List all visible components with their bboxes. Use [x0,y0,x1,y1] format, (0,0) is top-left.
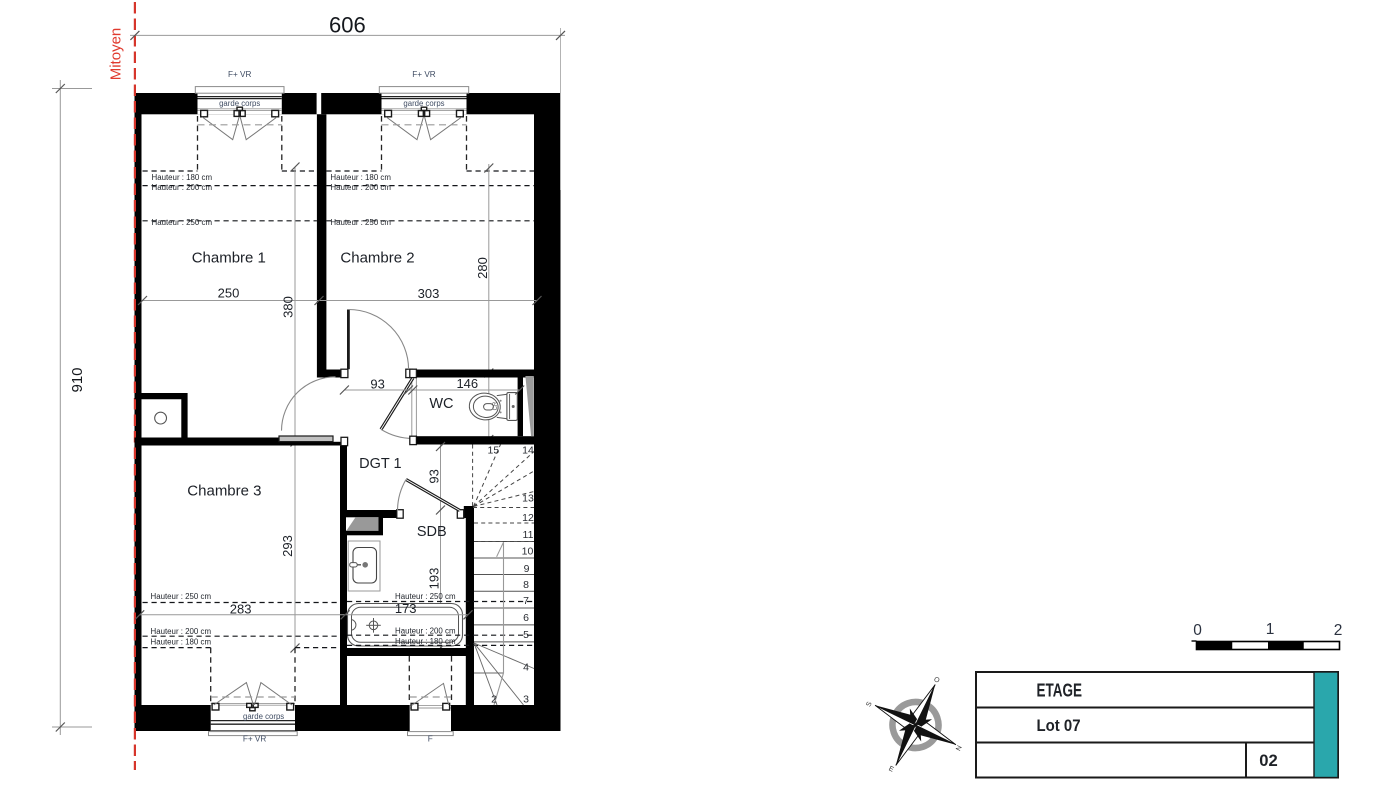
svg-text:11: 11 [523,529,534,541]
svg-text:1: 1 [1266,621,1275,638]
svg-text:280: 280 [475,257,490,279]
svg-text:Chambre 2: Chambre 2 [340,250,414,267]
svg-text:Hauteur : 200 cm: Hauteur : 200 cm [152,183,213,192]
svg-text:146: 146 [456,376,478,391]
svg-text:14: 14 [522,445,534,457]
svg-text:8: 8 [523,579,529,591]
svg-text:F+ VR: F+ VR [412,70,436,79]
svg-text:02: 02 [1259,751,1278,770]
svg-text:283: 283 [230,602,252,617]
svg-text:Hauteur : 250 cm: Hauteur : 250 cm [330,218,391,227]
svg-text:Hauteur : 250 cm: Hauteur : 250 cm [151,592,212,601]
svg-text:303: 303 [418,286,440,301]
svg-text:15: 15 [488,445,500,457]
svg-text:Mitoyen: Mitoyen [108,28,125,81]
svg-text:5: 5 [523,629,529,641]
svg-text:CR: CR [493,401,499,410]
svg-text:ETAGE: ETAGE [1037,681,1083,701]
svg-text:93: 93 [426,469,441,483]
svg-text:93: 93 [370,377,384,392]
svg-text:910: 910 [69,367,86,392]
svg-text:2: 2 [1334,622,1343,639]
svg-text:380: 380 [281,296,296,318]
svg-text:193: 193 [427,568,442,590]
svg-text:7: 7 [523,595,529,607]
svg-text:F+ VR: F+ VR [243,735,267,744]
svg-text:F+ VR: F+ VR [228,70,252,79]
svg-text:garde corps: garde corps [243,712,284,721]
svg-text:2: 2 [491,694,497,706]
svg-text:Hauteur : 180 cm: Hauteur : 180 cm [151,637,212,646]
svg-text:F: F [428,735,433,744]
svg-text:6: 6 [523,612,529,624]
svg-text:Lot 07: Lot 07 [1037,716,1081,735]
svg-text:Hauteur : 180 cm: Hauteur : 180 cm [152,173,213,182]
svg-text:606: 606 [329,13,366,38]
svg-text:0: 0 [1193,622,1202,639]
svg-text:Hauteur : 250 cm: Hauteur : 250 cm [152,218,213,227]
svg-text:Hauteur : 180 cm: Hauteur : 180 cm [330,173,391,182]
svg-text:DGT 1: DGT 1 [359,456,401,472]
svg-text:10: 10 [522,546,534,558]
svg-text:3: 3 [523,694,529,706]
svg-text:Hauteur : 180 cm: Hauteur : 180 cm [395,637,456,646]
svg-text:Hauteur : 200 cm: Hauteur : 200 cm [330,183,391,192]
svg-text:9: 9 [524,563,530,575]
svg-text:WC: WC [429,396,453,412]
svg-text:Hauteur : 250 cm: Hauteur : 250 cm [395,592,456,601]
svg-text:250: 250 [218,286,240,301]
svg-text:Hauteur : 200 cm: Hauteur : 200 cm [151,627,212,636]
svg-text:Chambre 1: Chambre 1 [192,250,266,267]
svg-text:173: 173 [395,601,417,616]
svg-text:13: 13 [522,493,534,505]
svg-text:293: 293 [280,535,295,557]
svg-text:4: 4 [523,661,529,673]
svg-text:12: 12 [522,512,534,524]
svg-text:SDB: SDB [417,524,447,540]
svg-text:Chambre 3: Chambre 3 [187,482,261,499]
svg-text:Hauteur : 200 cm: Hauteur : 200 cm [395,626,456,635]
